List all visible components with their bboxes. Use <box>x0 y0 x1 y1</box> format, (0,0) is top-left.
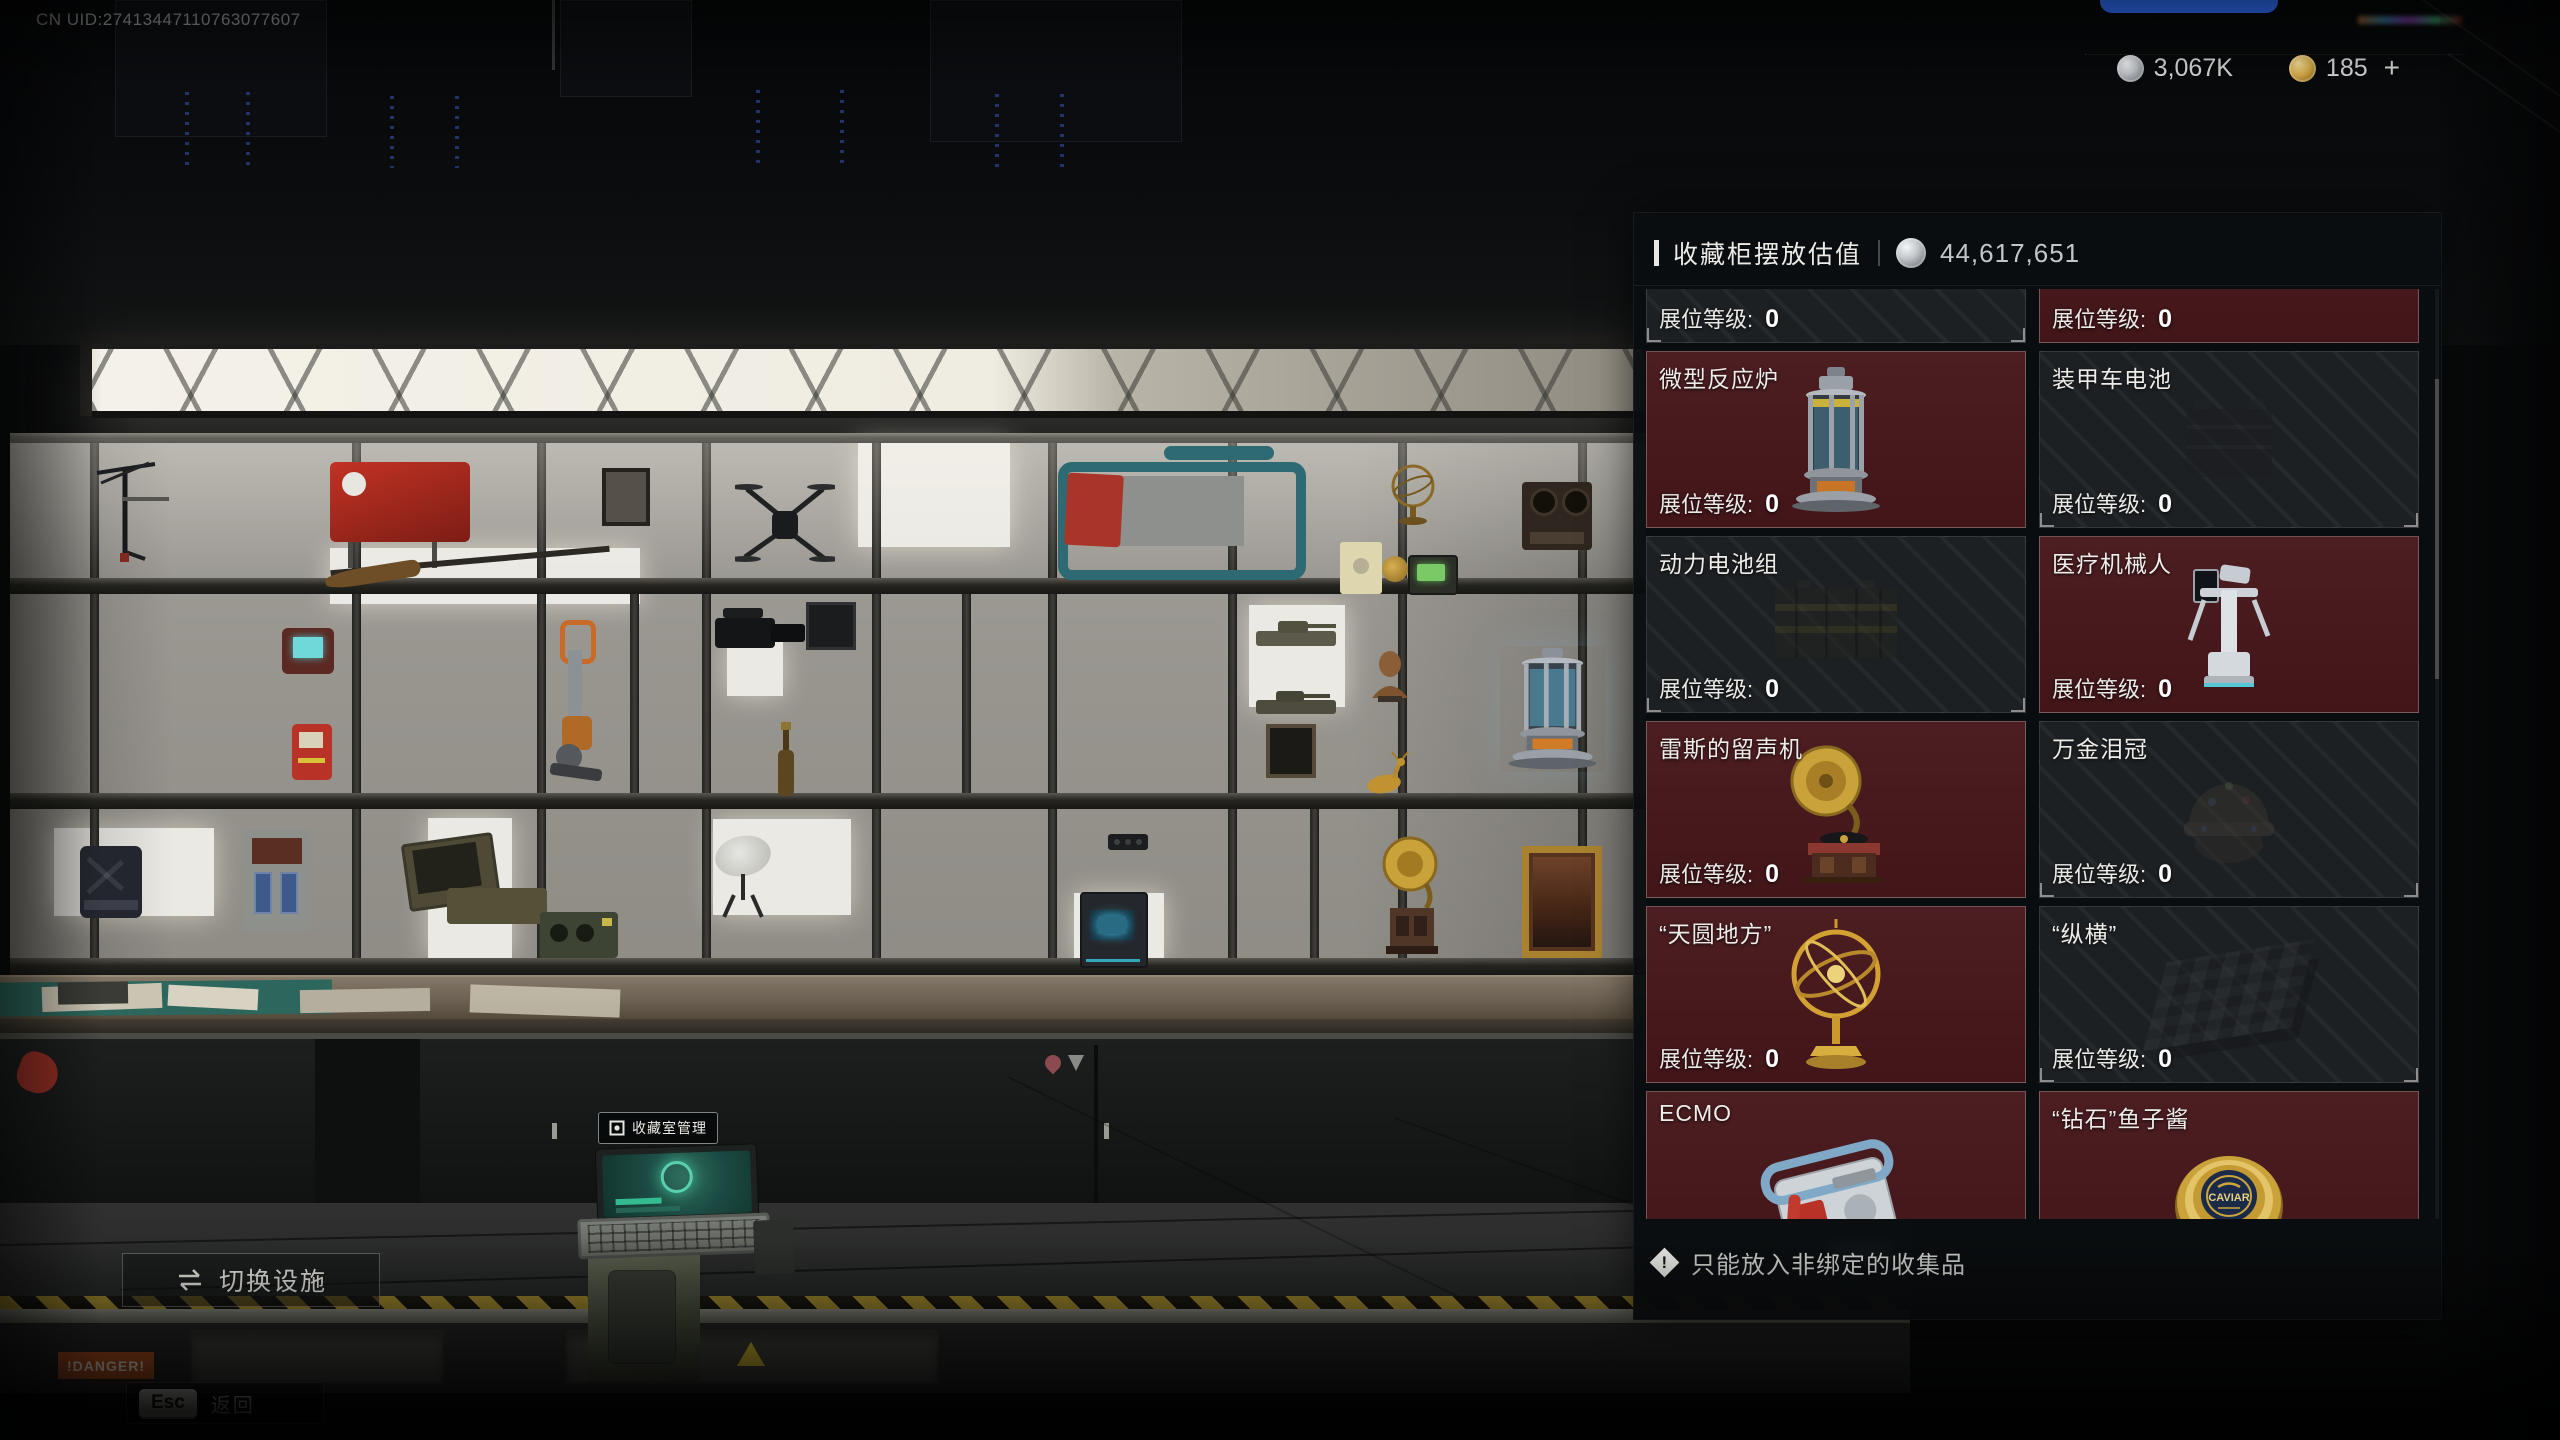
terminal-laptop-screen[interactable] <box>595 1143 760 1225</box>
shelf-item-field-radio <box>282 628 334 674</box>
shelf-item-wine-bottle <box>774 722 798 796</box>
shelf-item-gramophone-display <box>1376 836 1446 962</box>
shelf-item-jerry-can <box>80 846 142 918</box>
platform-edge <box>0 1309 1910 1323</box>
booth-level: 展位等级:0 <box>1659 857 1779 889</box>
shelf-item-red-device <box>330 462 470 542</box>
terminal-interaction-label[interactable]: 收藏室管理 <box>598 1112 718 1144</box>
shelf-item-drone <box>735 475 835 570</box>
red-bow-sticker <box>12 1047 63 1098</box>
footer-note-text: 只能放入非绑定的收集品 <box>1691 1245 1966 1280</box>
header-divider <box>1878 240 1880 266</box>
switch-facility-label: 切换设施 <box>219 1262 327 1298</box>
collectible-card[interactable]: 展位等级:0 <box>2039 289 2419 343</box>
shelf-item-gold-horn-small <box>1382 556 1408 582</box>
booth-level: 展位等级:0 <box>2052 672 2172 704</box>
collectible-card-armillary[interactable]: “天圆地方” 展位等级:0 <box>1646 906 2026 1083</box>
terminal-logo <box>660 1160 693 1193</box>
collectible-card-power-battery[interactable]: 动力电池组 展位等级:0 <box>1646 536 2026 713</box>
collectible-card-tear-crown[interactable]: 万金泪冠 展位等级:0 <box>2039 721 2419 898</box>
gold-amount: 185 <box>2326 54 2368 83</box>
heart-sticker <box>1042 1052 1065 1075</box>
shelf-item-defibrillator <box>292 724 332 780</box>
chevron-sticker <box>1068 1055 1084 1071</box>
booth-level: 展位等级:0 <box>2052 302 2172 334</box>
panel-footer-note: ! 只能放入非绑定的收集品 <box>1654 1245 1966 1280</box>
valuation-coin-icon <box>1896 238 1926 268</box>
shelf-item-nightvision-device <box>540 912 618 958</box>
shelf-item-golden-deer <box>1358 748 1410 798</box>
lower-cabinets <box>0 1033 1910 1209</box>
shelf-item-gold-framed-painting <box>1522 846 1602 958</box>
title-accent-bar <box>1654 240 1659 266</box>
booth-level: 展位等级:0 <box>2052 487 2172 519</box>
collectible-card-medical-robot[interactable]: 医疗机械人 展 <box>2039 536 2419 713</box>
shelf-item-vacuum-cleaner <box>548 620 604 780</box>
collectible-card-caviar[interactable]: “钻石”鱼子酱 CAVIAR <box>2039 1091 2419 1219</box>
shelf-item-cutting-machine <box>1058 462 1306 580</box>
collectible-card-micro-reactor[interactable]: 微型反应炉 <box>1646 351 2026 528</box>
shelf-item-green-screen-device <box>1408 555 1458 595</box>
shelf-item-micro-reactor-display <box>1500 646 1605 772</box>
currency-bar: 3,067K 185 + <box>2117 52 2400 84</box>
shelf-item-video-camera <box>715 608 811 654</box>
silver-amount: 3,067K <box>2154 54 2233 83</box>
game-screen: !DANGER! 收藏室管理 CN UID:274134471107630776… <box>0 0 2560 1440</box>
collectibles-grid-viewport: 展位等级:0 展位等级:0 微型反应炉 <box>1646 289 2429 1219</box>
shelf-item-yellow-box <box>1340 542 1382 594</box>
shelf-item-armillary-small <box>1385 460 1441 528</box>
booth-level: 展位等级:0 <box>1659 302 1779 334</box>
collectible-card-ecmo[interactable]: ECMO 展位等级: <box>1646 1091 2026 1219</box>
collectibles-grid: 展位等级:0 展位等级:0 微型反应炉 <box>1646 289 2417 1219</box>
display-case-icon <box>609 1120 625 1136</box>
counter-lip <box>0 1019 1910 1033</box>
warning-triangle-icon <box>737 1342 765 1366</box>
top-notification-button[interactable] <box>2100 0 2278 13</box>
esc-back-hint[interactable]: Esc 返回 <box>126 1382 324 1424</box>
terminal-keyboard <box>577 1213 770 1260</box>
shelf-item-framed-device <box>1266 724 1316 778</box>
shelf-item-satellite-dish <box>715 836 779 920</box>
shelf-item-holo-case <box>1080 892 1148 968</box>
ceiling-light-panel <box>92 344 1644 418</box>
silver-coin-icon <box>2117 55 2144 82</box>
collection-valuation-panel: 收藏柜摆放估值 44,617,651 展位等级:0 展位等级:0 微型 <box>1633 212 2442 1320</box>
total-valuation: 44,617,651 <box>1940 238 2080 269</box>
shelf-item-bronze-bust <box>1370 650 1410 702</box>
terminal-pedestal <box>588 1242 700 1382</box>
panel-scrollbar[interactable] <box>2435 289 2439 1219</box>
esc-keycap: Esc <box>139 1389 197 1417</box>
shelf-item-dark-screen <box>806 602 856 650</box>
panel-title: 收藏柜摆放估值 <box>1673 235 1862 271</box>
currency-silver[interactable]: 3,067K <box>2117 54 2233 83</box>
collectible-card-armored-battery[interactable]: 装甲车电池 展位等级:0 <box>2039 351 2419 528</box>
shelf-item-helicopter-model <box>95 455 195 573</box>
swap-arrows-icon <box>175 1268 205 1292</box>
booth-level: 展位等级:0 <box>1659 487 1779 519</box>
alert-diamond-icon: ! <box>1650 1248 1680 1278</box>
shelf-item-tape-recorder <box>1522 482 1592 550</box>
danger-sticker: !DANGER! <box>58 1352 154 1379</box>
workbench-counter <box>0 975 1910 1021</box>
shelf-item-speaker-bar <box>1108 834 1148 850</box>
gold-coin-icon <box>2289 55 2316 82</box>
booth-level: 展位等级:0 <box>2052 1042 2172 1074</box>
currency-gold[interactable]: 185 + <box>2289 52 2400 84</box>
esc-back-label: 返回 <box>211 1389 255 1418</box>
switch-facility-button[interactable]: 切换设施 <box>122 1253 380 1307</box>
booth-level: 展位等级:0 <box>2052 857 2172 889</box>
shelf-item-wall-frame <box>602 468 650 526</box>
shelf-item-tank-model-2 <box>1256 686 1336 718</box>
shelf-item-instrument-panel <box>244 830 310 930</box>
add-currency-button[interactable]: + <box>2384 52 2400 84</box>
booth-level: 展位等级:0 <box>1659 672 1779 704</box>
collectible-card[interactable]: 展位等级:0 <box>1646 289 2026 343</box>
header-separator <box>1634 285 2441 286</box>
right-shadow <box>2440 0 2560 1440</box>
collectible-card-phonograph[interactable]: 雷斯的留声机 <box>1646 721 2026 898</box>
collectible-card-chessboard[interactable]: “纵横” 展位等级:0 <box>2039 906 2419 1083</box>
player-uid: CN UID:27413447110763077607 <box>36 10 301 30</box>
terminal-label-text: 收藏室管理 <box>632 1118 707 1138</box>
shelf-item-tank-model-1 <box>1256 615 1336 651</box>
booth-level: 展位等级:0 <box>1659 1042 1779 1074</box>
shelf-item-pelican-case <box>405 838 547 926</box>
panel-header: 收藏柜摆放估值 44,617,651 <box>1654 231 2080 275</box>
svg-text:CAVIAR: CAVIAR <box>2208 1192 2249 1204</box>
terminal-keypad <box>753 1219 795 1274</box>
